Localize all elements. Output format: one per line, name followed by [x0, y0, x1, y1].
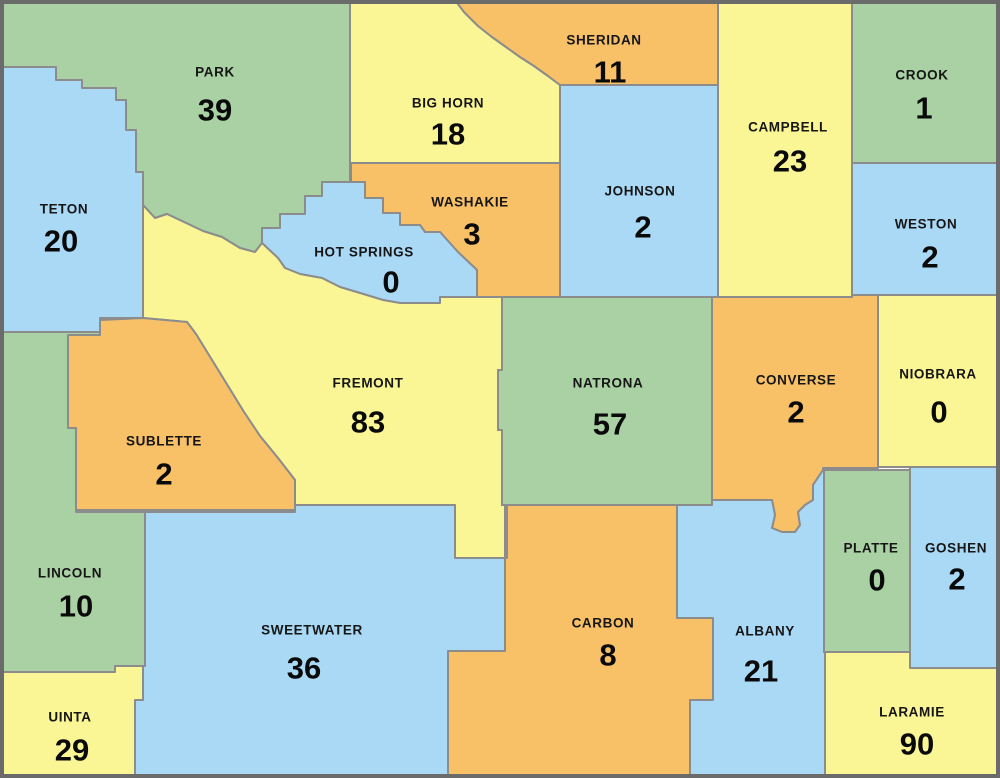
- county-value-label-bighorn: 18: [431, 117, 465, 152]
- county-value-label-sweetwater: 36: [287, 651, 321, 686]
- county-name-label-lincoln: LINCOLN: [38, 566, 102, 581]
- county-value-label-crook: 1: [915, 91, 932, 126]
- county-name-label-niobrara: NIOBRARA: [899, 367, 977, 382]
- county-value-label-laramie: 90: [900, 727, 934, 762]
- county-shape-teton: [0, 67, 143, 332]
- county-name-label-teton: TETON: [40, 202, 89, 217]
- county-name-label-park: PARK: [195, 65, 235, 80]
- county-name-label-uinta: UINTA: [48, 710, 91, 725]
- county-name-label-natrona: NATRONA: [573, 376, 644, 391]
- county-name-label-bighorn: BIG HORN: [412, 96, 484, 111]
- county-value-label-sheridan: 11: [594, 55, 627, 90]
- county-name-label-carbon: CARBON: [572, 616, 635, 631]
- county-value-label-albany: 21: [744, 654, 778, 689]
- county-name-label-crook: CROOK: [895, 68, 948, 83]
- county-map-canvas: PARK39BIG HORN18SHERIDAN11CAMPBELL23CROO…: [0, 0, 1000, 778]
- county-name-label-albany: ALBANY: [735, 624, 795, 639]
- county-value-label-goshen: 2: [948, 562, 965, 597]
- county-name-label-converse: CONVERSE: [756, 373, 837, 388]
- county-value-label-niobrara: 0: [930, 395, 947, 430]
- county-name-label-sublette: SUBLETTE: [126, 434, 202, 449]
- county-value-label-uinta: 29: [55, 733, 89, 768]
- county-value-label-fremont: 83: [351, 405, 385, 440]
- county-shape-platte: [824, 470, 910, 652]
- county-value-label-park: 39: [198, 93, 232, 128]
- county-value-label-campbell: 23: [773, 144, 807, 179]
- county-value-label-teton: 20: [44, 224, 78, 259]
- county-shape-natrona: [498, 297, 712, 505]
- county-name-label-sheridan: SHERIDAN: [566, 33, 641, 48]
- county-value-label-washakie: 3: [463, 217, 480, 252]
- county-name-label-laramie: LARAMIE: [879, 705, 945, 720]
- county-name-label-platte: PLATTE: [843, 541, 898, 556]
- county-value-label-sublette: 2: [155, 457, 172, 492]
- county-name-label-campbell: CAMPBELL: [748, 120, 828, 135]
- county-name-label-hotsprings: HOT SPRINGS: [314, 245, 414, 260]
- county-name-label-sweetwater: SWEETWATER: [261, 623, 363, 638]
- county-value-label-lincoln: 10: [59, 589, 93, 624]
- wyoming-county-map: PARK39BIG HORN18SHERIDAN11CAMPBELL23CROO…: [0, 0, 1000, 778]
- county-value-label-natrona: 57: [593, 407, 627, 442]
- county-name-label-washakie: WASHAKIE: [431, 195, 509, 210]
- county-value-label-carbon: 8: [599, 638, 616, 673]
- county-value-label-weston: 2: [921, 240, 938, 275]
- county-value-label-converse: 2: [787, 395, 804, 430]
- county-name-label-johnson: JOHNSON: [605, 184, 676, 199]
- county-name-label-goshen: GOSHEN: [925, 541, 987, 556]
- county-name-label-weston: WESTON: [895, 217, 958, 232]
- county-value-label-hotsprings: 0: [382, 265, 399, 300]
- county-value-label-platte: 0: [868, 563, 885, 598]
- county-value-label-johnson: 2: [634, 210, 651, 245]
- county-name-label-fremont: FREMONT: [333, 376, 404, 391]
